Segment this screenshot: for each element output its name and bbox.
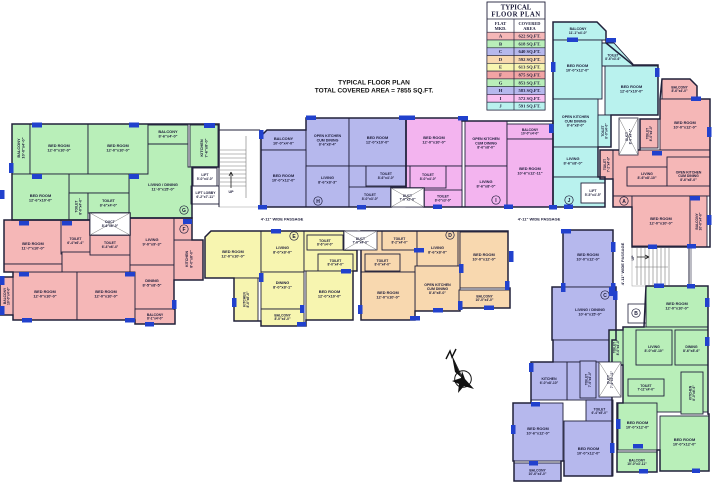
svg-text:4'-11" WIDE PASSAGE: 4'-11" WIDE PASSAGE (261, 217, 304, 222)
svg-text:10'-0"x12'-0": 10'-0"x12'-0" (472, 257, 495, 262)
svg-text:5'-5"x4'-5": 5'-5"x4'-5" (585, 193, 602, 197)
svg-text:8'-6"x4'-0": 8'-6"x4'-0" (100, 203, 118, 207)
svg-text:10'-0"x12'-0": 10'-0"x12'-0" (673, 125, 696, 130)
svg-text:8'-6"x8'-0": 8'-6"x8'-0" (567, 123, 585, 127)
svg-text:12'-0"x10'-0": 12'-0"x10'-0" (376, 295, 399, 300)
svg-text:8'-0"x4'-0": 8'-0"x4'-0" (327, 263, 343, 267)
svg-text:10'-6"x4'-0": 10'-6"x4'-0" (529, 472, 547, 476)
svg-text:I: I (500, 96, 502, 101)
svg-text:10'-6"x15'-0": 10'-6"x15'-0" (578, 312, 601, 317)
svg-text:E: E (499, 65, 502, 70)
svg-text:6'-4"x6'-4": 6'-4"x6'-4" (102, 245, 119, 249)
svg-text:6'-2"x7'-11": 6'-2"x7'-11" (196, 195, 215, 199)
svg-text:7'-6"x3'-11": 7'-6"x3'-11" (610, 370, 614, 388)
svg-text:UP: UP (631, 255, 635, 261)
svg-text:8'-0"x4'-1": 8'-0"x4'-1" (629, 128, 633, 144)
svg-text:8'-6"x4'-0": 8'-6"x4'-0" (159, 134, 178, 139)
svg-text:A: A (622, 199, 626, 205)
svg-text:8'-0"x3'-0": 8'-0"x3'-0" (362, 197, 379, 201)
svg-text:8'-6"x8'-0": 8'-6"x8'-0" (680, 178, 697, 182)
svg-text:FLOOR PLAN: FLOOR PLAN (491, 12, 540, 19)
svg-text:10'-0"x4'-0": 10'-0"x4'-0" (699, 212, 703, 230)
svg-text:11'-0"x15'-0": 11'-0"x15'-0" (151, 187, 174, 192)
svg-text:12'-0"x10'-0": 12'-0"x10'-0" (94, 294, 117, 299)
svg-text:6'-4"x5'-0": 6'-4"x5'-0" (591, 411, 607, 415)
svg-text:G: G (499, 80, 503, 85)
svg-text:8'-0"x4'-0": 8'-0"x4'-0" (649, 125, 653, 141)
svg-text:10'-0"x12'-0": 10'-0"x12'-0" (577, 451, 600, 456)
svg-text:12'-6"x10'-0": 12'-6"x10'-0" (620, 89, 643, 94)
svg-text:8'-0"x4'-0": 8'-0"x4'-0" (374, 263, 390, 267)
svg-text:10'-0"x12'-0": 10'-0"x12'-0" (272, 178, 295, 183)
svg-text:8'-6"x4'-0": 8'-6"x4'-0" (378, 176, 395, 180)
svg-text:12'-6"x10'-0": 12'-6"x10'-0" (29, 198, 52, 203)
svg-text:12'-0"x10'-0": 12'-0"x10'-0" (422, 140, 445, 145)
svg-text:8'-0"x8'-10": 8'-0"x8'-10" (645, 349, 664, 353)
svg-text:853 SQ.FT.: 853 SQ.FT. (519, 80, 541, 85)
svg-text:12'-0"x10'-0": 12'-0"x10'-0" (33, 294, 56, 299)
svg-text:TOTAL COVERED AREA = 7855 SQ.F: TOTAL COVERED AREA = 7855 SQ.FT. (315, 88, 434, 95)
svg-text:8'-6"x4'-0": 8'-6"x4'-0" (671, 89, 687, 93)
svg-text:10'-0"x4'-0": 10'-0"x4'-0" (273, 141, 294, 146)
svg-text:8'-6"x8'-0": 8'-6"x8'-0" (477, 145, 495, 149)
svg-text:10'-0"x12'-0": 10'-0"x12'-0" (673, 442, 696, 447)
svg-text:12'-0"x10'-0": 12'-0"x10'-0" (366, 140, 389, 145)
svg-text:12'-0"x10'-0": 12'-0"x10'-0" (47, 148, 70, 153)
svg-text:622 SQ.FT.: 622 SQ.FT. (519, 34, 541, 39)
svg-text:12'-0"x10'-0": 12'-0"x10'-0" (221, 254, 244, 259)
svg-text:8'-2"x4'-0": 8'-2"x4'-0" (391, 241, 407, 245)
svg-text:D: D (448, 233, 452, 239)
svg-text:UP: UP (229, 190, 235, 194)
svg-text:8'-0"x4'-0": 8'-0"x4'-0" (274, 317, 290, 321)
svg-text:572 SQ.FT.: 572 SQ.FT. (519, 96, 541, 101)
svg-text:TYPICAL: TYPICAL (501, 5, 532, 12)
svg-text:592 SQ.FT.: 592 SQ.FT. (519, 57, 541, 62)
svg-text:8'-5"x8'-5": 8'-5"x8'-5" (143, 283, 162, 288)
svg-text:TYPICAL FLOOR PLAN: TYPICAL FLOOR PLAN (338, 80, 410, 87)
svg-text:8'-6"x3'-6": 8'-6"x3'-6" (605, 57, 621, 61)
svg-text:8'-6"x8'-3": 8'-6"x8'-3" (318, 180, 337, 185)
svg-text:12'-0"x10'-0": 12'-0"x10'-0" (649, 221, 672, 226)
svg-text:7'-6"x4'-0": 7'-6"x4'-0" (588, 371, 592, 387)
svg-text:7'-6"x8'-0": 7'-6"x8'-0" (204, 138, 209, 157)
svg-text:8'-0"x3'-0": 8'-0"x3'-0" (435, 199, 452, 203)
svg-text:12'-0"x10'-0": 12'-0"x10'-0" (106, 148, 129, 153)
svg-text:4'-11" WIDE PASSAGE: 4'-11" WIDE PASSAGE (518, 217, 561, 222)
svg-text:7'-0"x4'-0": 7'-0"x4'-0" (352, 241, 368, 245)
svg-text:10'-0"x12'-0": 10'-0"x12'-0" (566, 68, 589, 73)
svg-text:10'-0"x4'-0": 10'-0"x4'-0" (7, 287, 11, 305)
svg-text:591 SQ.FT.: 591 SQ.FT. (519, 104, 541, 109)
svg-text:10'-0"x3'-11": 10'-0"x3'-11" (627, 462, 647, 466)
svg-text:H: H (316, 199, 320, 205)
svg-text:8'-0"x8'-0": 8'-0"x8'-0" (189, 250, 193, 268)
svg-text:10'-0"x4'-0": 10'-0"x4'-0" (521, 132, 539, 136)
svg-text:640 SQ.FT.: 640 SQ.FT. (519, 49, 541, 54)
svg-text:8'-6"x8'-0": 8'-6"x8'-0" (429, 291, 446, 295)
svg-text:8'-0"x4'-0": 8'-0"x4'-0" (605, 123, 609, 139)
svg-text:8'-0"x8'-0": 8'-0"x8'-0" (246, 291, 250, 307)
svg-text:7'-11"x4'-0": 7'-11"x4'-0" (637, 388, 655, 392)
svg-text:8'-6"x6'-0": 8'-6"x6'-0" (102, 224, 119, 228)
svg-text:8'-6"x8'-0": 8'-6"x8'-0" (428, 250, 447, 255)
svg-text:B: B (499, 41, 502, 46)
svg-text:C: C (499, 49, 502, 54)
svg-text:7'-2"x4'-0": 7'-2"x4'-0" (607, 156, 611, 172)
svg-text:7'-0"x2'-6": 7'-0"x2'-6" (399, 198, 415, 202)
svg-text:8'-6"x4'-0": 8'-6"x4'-0" (317, 243, 333, 247)
svg-text:H: H (499, 88, 503, 93)
svg-text:8'-6"x8'-0": 8'-6"x8'-0" (564, 161, 583, 166)
svg-text:10'-0"x12'-0": 10'-0"x12'-0" (626, 425, 649, 430)
svg-text:8'-6"x8'-10": 8'-6"x8'-10" (638, 176, 657, 180)
svg-text:618 SQ.FT.: 618 SQ.FT. (519, 41, 541, 46)
svg-text:6'-4"x6'-4": 6'-4"x6'-4" (67, 241, 84, 245)
svg-text:8'-0"x4'-0": 8'-0"x4'-0" (616, 339, 620, 355)
svg-text:10'-0"x4'-0": 10'-0"x4'-0" (21, 137, 26, 158)
svg-text:MKD.: MKD. (495, 26, 507, 31)
svg-text:11'-7"x10'-0": 11'-7"x10'-0" (21, 246, 44, 251)
svg-text:12'-0"x10'-0": 12'-0"x10'-0" (318, 294, 341, 299)
svg-text:8'-6"x8'-4": 8'-6"x8'-4" (319, 142, 337, 146)
svg-text:5'-0"x4'-0": 5'-0"x4'-0" (197, 177, 214, 181)
svg-text:B: B (634, 311, 638, 317)
svg-text:11'-1"x4'-0": 11'-1"x4'-0" (569, 31, 588, 35)
svg-text:583 SQ.FT.: 583 SQ.FT. (519, 88, 541, 93)
svg-text:10'-6"x12'-0": 10'-6"x12'-0" (526, 431, 549, 436)
svg-text:8'-6"x8'-6": 8'-6"x8'-6" (683, 349, 700, 353)
svg-text:8'-6"x4'-0": 8'-6"x4'-0" (79, 198, 83, 215)
svg-text:613 SQ.FT.: 613 SQ.FT. (519, 65, 541, 70)
svg-text:6'-0"x8'-10": 6'-0"x8'-10" (540, 381, 559, 385)
svg-text:10'-6"x12'-11": 10'-6"x12'-11" (517, 171, 542, 176)
svg-text:12'-0"x10'-0": 12'-0"x10'-0" (665, 306, 688, 311)
svg-text:8'-0"x8'-0": 8'-0"x8'-0" (273, 250, 292, 255)
svg-text:G: G (182, 208, 186, 214)
svg-text:8'-6"x8'-0": 8'-6"x8'-0" (477, 184, 496, 189)
svg-text:10'-0"x4'-0": 10'-0"x4'-0" (476, 298, 494, 302)
svg-text:F: F (182, 227, 185, 233)
svg-text:AREA: AREA (523, 26, 536, 31)
svg-text:8'-0"x4'-0": 8'-0"x4'-0" (420, 177, 437, 181)
svg-text:8'-0"x8'-6": 8'-0"x8'-6" (692, 385, 696, 401)
svg-text:9'-0"x9'-3": 9'-0"x9'-3" (143, 242, 162, 247)
svg-text:875 SQ.FT.: 875 SQ.FT. (519, 73, 541, 78)
svg-text:4'-11" WIDE PASSAGE: 4'-11" WIDE PASSAGE (620, 242, 625, 285)
svg-text:C: C (603, 293, 607, 299)
svg-text:8'-1"x4'-0": 8'-1"x4'-0" (147, 317, 163, 321)
svg-text:8'-0"x8'-1": 8'-0"x8'-1" (273, 285, 292, 290)
svg-text:F: F (499, 73, 502, 78)
svg-text:10'-0"x12'-0": 10'-0"x12'-0" (576, 257, 599, 262)
svg-text:J: J (568, 198, 571, 204)
